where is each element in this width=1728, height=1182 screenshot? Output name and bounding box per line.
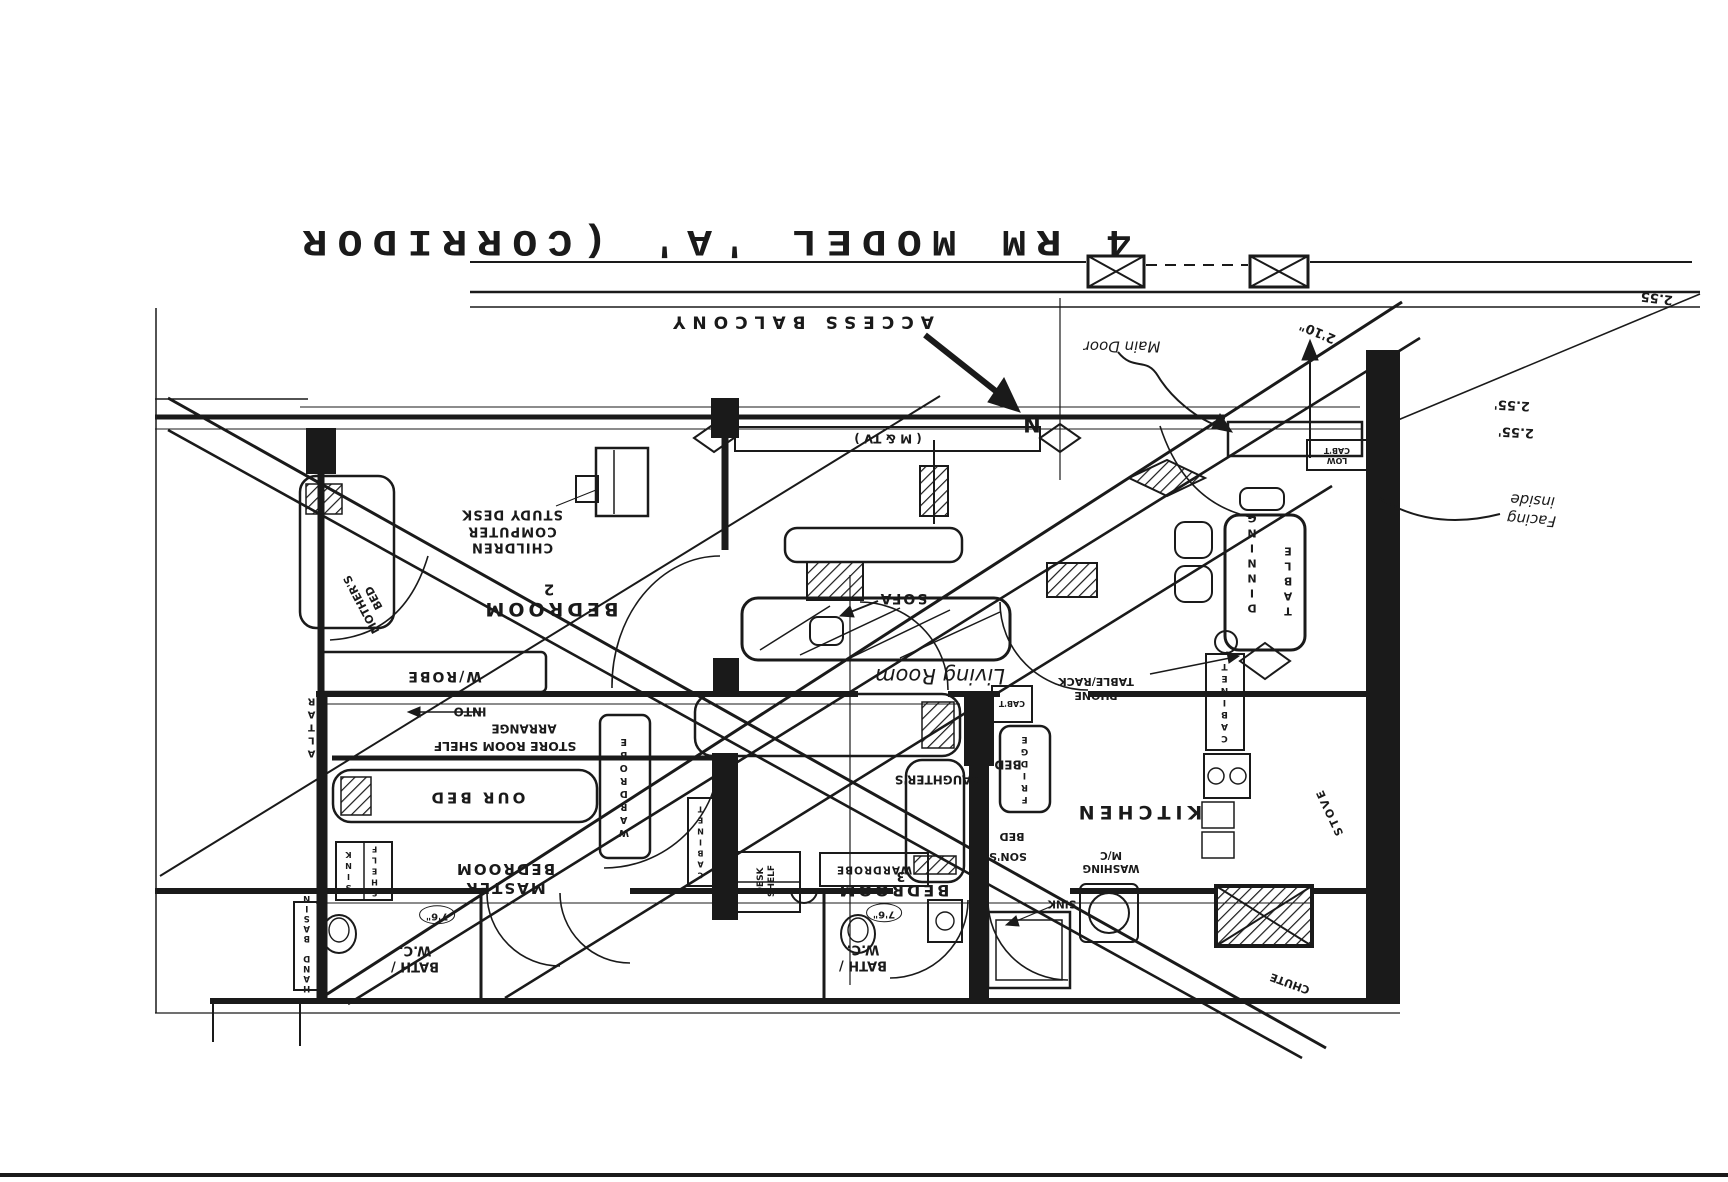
our-bed-label: OUR BED <box>429 788 526 807</box>
daughters-bed-label: BED <box>994 757 1021 772</box>
phone-rack-label: PHONE TABLE/RACK <box>1058 674 1134 702</box>
floor-plan-scan: 4 RM MODEL 'A' (CORRIDOR ACCESS BALCONY … <box>0 0 1728 1182</box>
flat-walls <box>155 298 1400 1046</box>
arrange-label: ARRANGE <box>491 721 556 736</box>
sofa-label: SOFA <box>879 588 928 606</box>
bath-center-dim: 7'6" <box>866 904 902 923</box>
living-room-label: Living Room <box>875 663 1005 689</box>
center-cabinet-label: CABINET <box>697 803 705 880</box>
daughters-label: DAUGHTER'S <box>895 772 981 787</box>
cabt-label: CAB'T <box>999 698 1025 708</box>
into-label: INTO <box>454 704 487 719</box>
sons-label: SON'S <box>989 849 1027 863</box>
floor-plan-linework <box>0 0 1728 1182</box>
kit-sink-label: SINK <box>1048 896 1076 909</box>
master-wardrobe-label: WARDROBE <box>619 734 629 838</box>
corridor-walls <box>0 262 1728 1175</box>
wall-stub-hatched <box>920 466 948 516</box>
children-study-label: CHILDREN COMPUTER STUDY DESK <box>461 506 563 555</box>
dinning-label: DINNING <box>1247 510 1258 615</box>
store-room-shelf-label: STORE ROOM SHELF <box>434 738 577 754</box>
fridge-label: FRIDGE <box>1021 732 1030 804</box>
wardrobe-label: W/ROBE <box>406 666 481 684</box>
dim-2-55-a: 2.55' <box>1494 395 1531 413</box>
shelf-vertical-label: SHELF <box>371 843 379 898</box>
dim-2-55-b: 2.55' <box>1498 422 1535 440</box>
desk-shelf-label: DESK SHELF <box>756 865 779 897</box>
bedroom2-label: BEDROOM <box>481 596 618 620</box>
washing-mc-label: WASHING M/C <box>1083 848 1140 874</box>
bedroom2-number: 2 <box>544 580 554 599</box>
north-marker: N <box>1023 411 1041 437</box>
low-cabinet-label: LOW CAB'T <box>1324 445 1350 465</box>
altar-label: ALTAR <box>307 694 317 759</box>
tv-cabinet-label: ( M & TV ) <box>854 431 922 446</box>
main-door-label: Main Door <box>1084 337 1161 356</box>
dinning-table-label: TABLE <box>1283 543 1294 618</box>
kitchen-cabinet-label: CABINET <box>1221 659 1230 743</box>
hand-basin-label: HAND BASIN <box>303 893 312 993</box>
bath-center-label: BATH / W.C. <box>839 940 887 973</box>
bedroom3-label: BEDROOM <box>837 880 950 900</box>
facing-inside-label: Facing inside <box>1506 490 1558 531</box>
kitchen-label: KITCHEN <box>1074 799 1202 823</box>
master-bedroom-label: MASTER BEDROOM <box>455 859 555 897</box>
sink-vertical-label: SINK <box>345 848 353 892</box>
bedroom3-wardrobe-label: WARDROBE <box>836 862 912 875</box>
bath-left-label: BATH / W.C. <box>391 941 439 974</box>
title: 4 RM MODEL 'A' (CORRIDOR <box>293 217 1132 263</box>
bath-left-dim: 7'6" <box>419 906 455 925</box>
living-furniture <box>694 424 1367 679</box>
access-balcony-label: ACCESS BALCONY <box>666 310 934 331</box>
sons-bed-label: BED <box>999 829 1024 843</box>
